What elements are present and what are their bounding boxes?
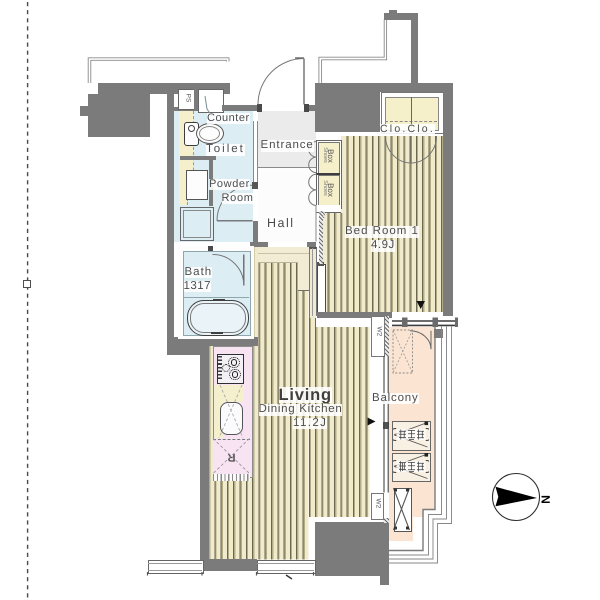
svg-text:N: N xyxy=(538,495,552,504)
